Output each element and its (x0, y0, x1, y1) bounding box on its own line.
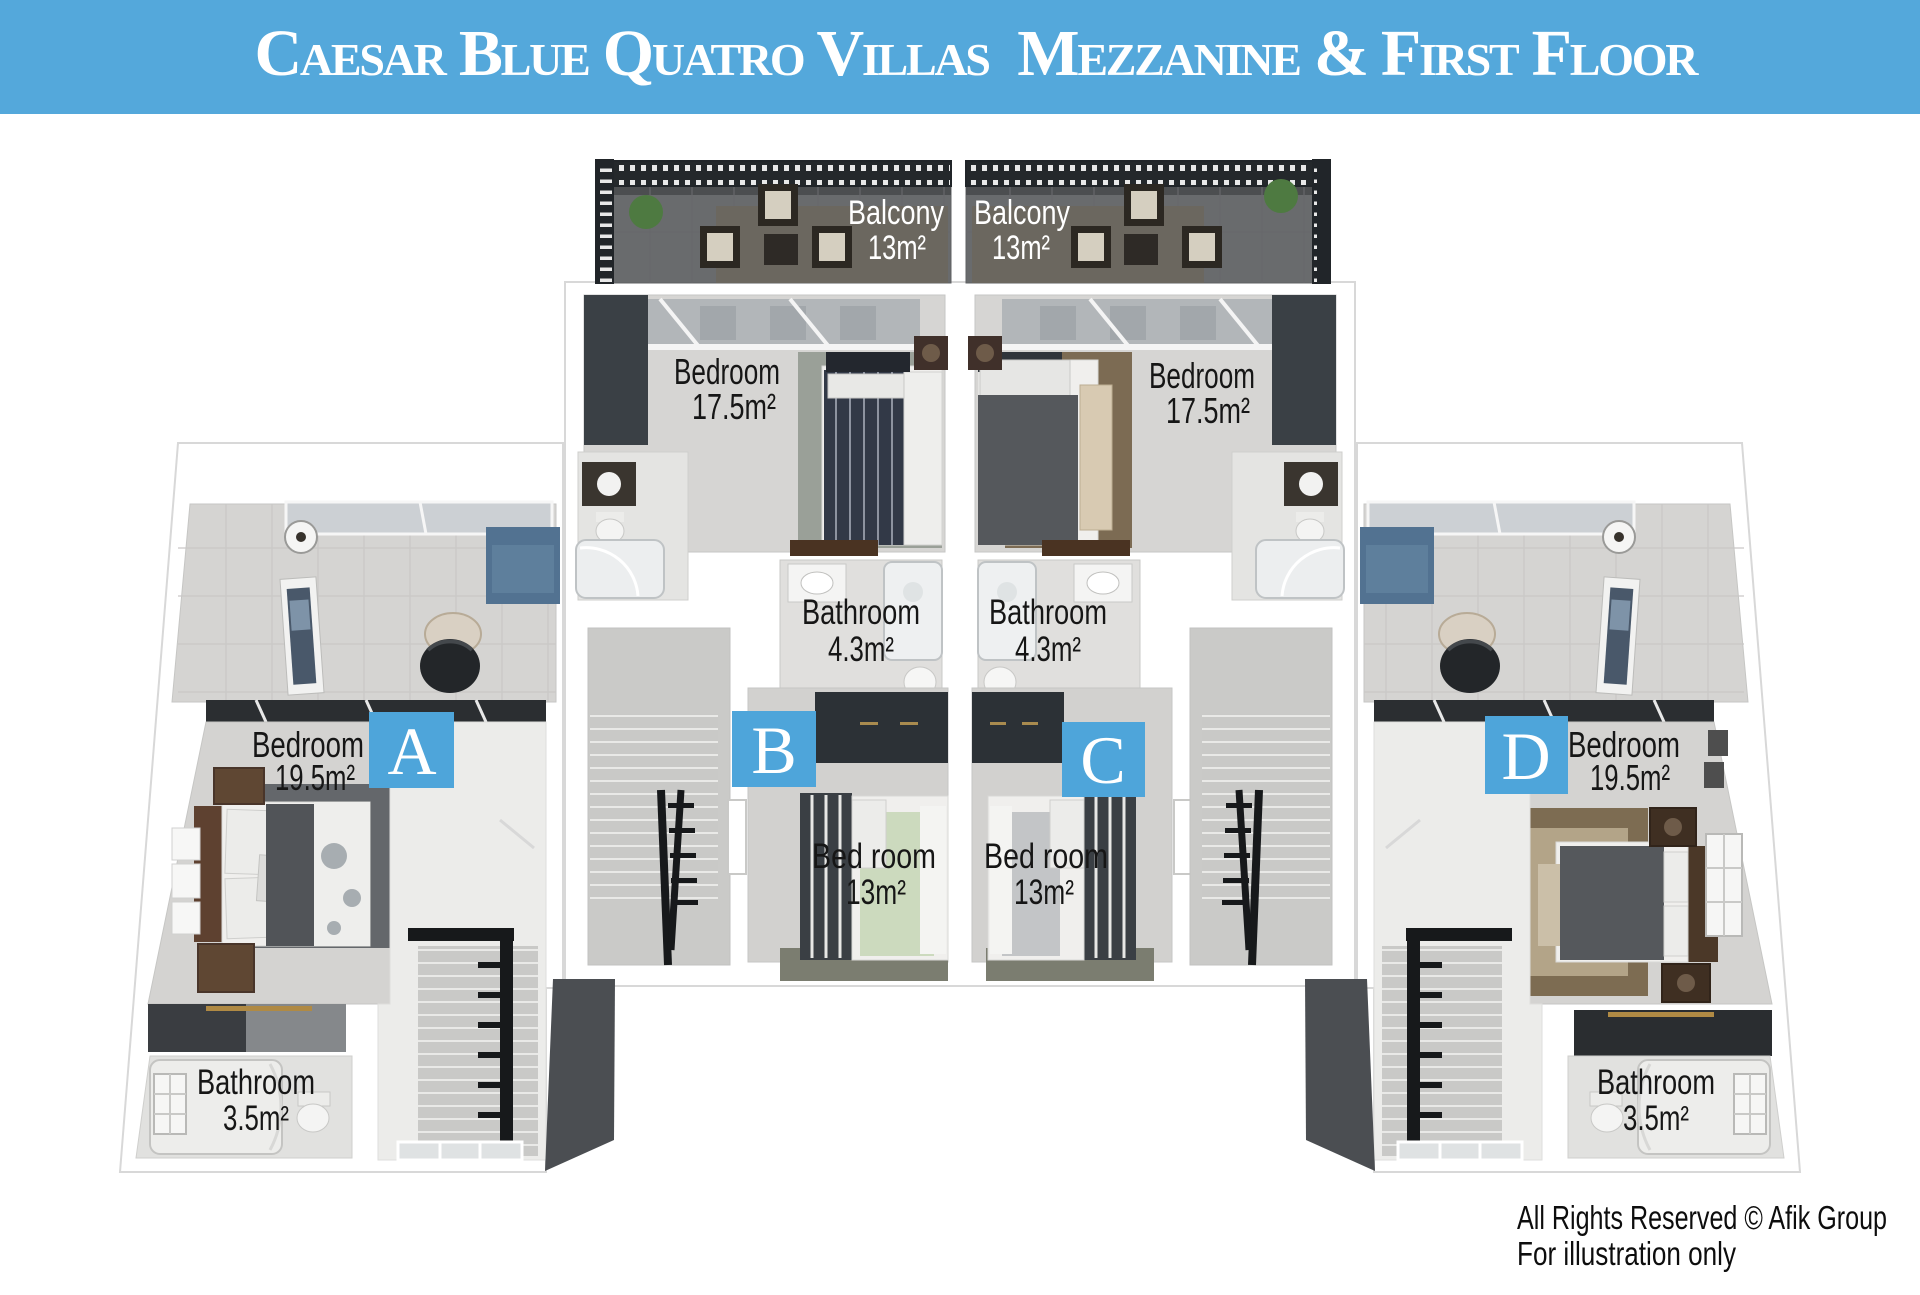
svg-text:Bathroom: Bathroom (1597, 1063, 1715, 1102)
svg-text:Bathroom: Bathroom (197, 1063, 315, 1102)
svg-text:17.5m²: 17.5m² (692, 386, 776, 427)
svg-text:B: B (751, 712, 796, 788)
svg-text:Balcony: Balcony (848, 194, 944, 232)
svg-text:Caesar Blue Quatro Villas Mez: Caesar Blue Quatro Villas Mezzanine & Fi… (255, 17, 1700, 90)
svg-text:D: D (1501, 718, 1550, 794)
svg-text:13m²: 13m² (868, 229, 926, 267)
svg-text:C: C (1080, 722, 1125, 798)
svg-text:3.5m²: 3.5m² (223, 1099, 289, 1138)
svg-text:Bed room: Bed room (812, 837, 936, 876)
svg-text:13m²: 13m² (846, 873, 906, 912)
svg-text:A: A (387, 713, 436, 789)
svg-text:13m²: 13m² (1014, 873, 1074, 912)
svg-text:19.5m²: 19.5m² (275, 757, 355, 798)
svg-text:Bed room: Bed room (984, 837, 1108, 876)
svg-text:13m²: 13m² (992, 229, 1050, 267)
svg-text:4.3m²: 4.3m² (828, 630, 894, 669)
svg-text:All Rights Reserved © Afik Gro: All Rights Reserved © Afik Group (1517, 1199, 1887, 1236)
svg-text:For illustration only: For illustration only (1517, 1235, 1736, 1272)
svg-text:Balcony: Balcony (974, 194, 1070, 232)
svg-text:3.5m²: 3.5m² (1623, 1099, 1689, 1138)
svg-text:17.5m²: 17.5m² (1166, 390, 1250, 431)
svg-text:Bathroom: Bathroom (989, 593, 1107, 632)
svg-text:19.5m²: 19.5m² (1590, 757, 1670, 798)
svg-text:4.3m²: 4.3m² (1015, 630, 1081, 669)
svg-text:Bathroom: Bathroom (802, 593, 920, 632)
